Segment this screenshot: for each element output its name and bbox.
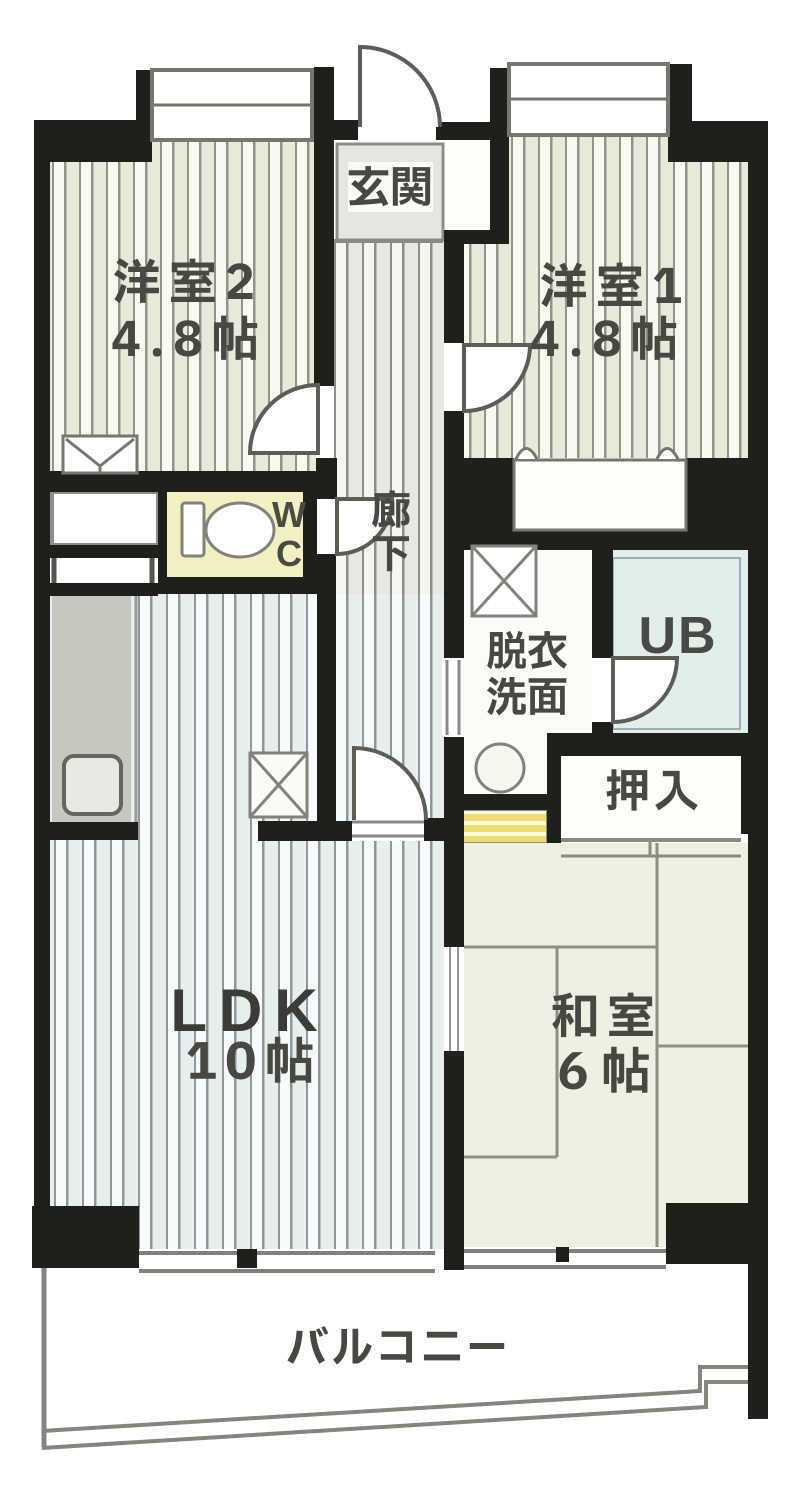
- svg-text:UB: UB: [638, 607, 717, 665]
- svg-text:W: W: [272, 494, 306, 535]
- svg-text:LDK: LDK: [170, 977, 329, 1044]
- svg-text:C: C: [276, 533, 302, 574]
